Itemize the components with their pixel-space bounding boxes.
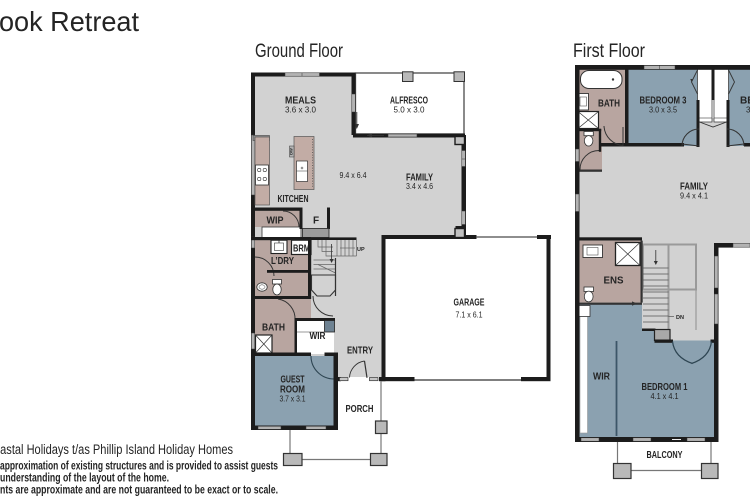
svg-text:KITCHEN: KITCHEN <box>278 194 309 205</box>
svg-text:First Floor: First Floor <box>573 41 646 62</box>
svg-text:3.6 x 3.0: 3.6 x 3.0 <box>285 106 317 115</box>
svg-text:BALCONY: BALCONY <box>647 450 683 461</box>
svg-text:Ground Floor: Ground Floor <box>255 41 344 62</box>
svg-text:PORCH: PORCH <box>346 404 374 415</box>
svg-text:9.4 x 4.1: 9.4 x 4.1 <box>680 192 709 201</box>
svg-text:7.1 x 6.1: 7.1 x 6.1 <box>456 311 483 320</box>
svg-text:3.0 x 3.5: 3.0 x 3.5 <box>649 106 678 115</box>
svg-text:oastal Holidays t/as Phillip I: oastal Holidays t/as Phillip Island Holi… <box>0 442 233 457</box>
svg-text:WIP: WIP <box>267 216 284 227</box>
svg-text:ook Retreat: ook Retreat <box>0 6 139 37</box>
svg-text:UP: UP <box>357 247 365 253</box>
svg-text:3.: 3. <box>746 106 750 115</box>
svg-text:GARAGE: GARAGE <box>454 298 485 309</box>
svg-text:L’DRY: L’DRY <box>271 256 294 267</box>
svg-text:ENTRY: ENTRY <box>347 346 373 357</box>
svg-text:F: F <box>313 216 319 227</box>
svg-text:DW: DW <box>289 148 294 155</box>
svg-text:WIR: WIR <box>310 331 327 342</box>
svg-text:4.1 x 4.1: 4.1 x 4.1 <box>651 392 680 401</box>
svg-text:ENS: ENS <box>604 276 624 287</box>
svg-text:BATH: BATH <box>598 99 620 110</box>
svg-text:understanding of the layout of: understanding of the layout of the home. <box>0 473 169 485</box>
svg-text:5.0 x 3.0: 5.0 x 3.0 <box>394 106 426 115</box>
svg-text:BATH: BATH <box>262 323 285 334</box>
svg-text:3.7 x 3.1: 3.7 x 3.1 <box>280 395 306 404</box>
svg-text:9.4 x 6.4: 9.4 x 6.4 <box>340 171 367 180</box>
svg-text:approximation of existing stru: approximation of existing structures and… <box>0 461 278 473</box>
svg-text:BRM: BRM <box>293 244 310 255</box>
svg-text:WIR: WIR <box>593 372 611 383</box>
svg-text:nts are approximate and are no: nts are approximate and are not guarante… <box>0 485 278 497</box>
svg-text:3.4 x 4.6: 3.4 x 4.6 <box>406 182 433 191</box>
svg-text:DN: DN <box>676 315 684 321</box>
